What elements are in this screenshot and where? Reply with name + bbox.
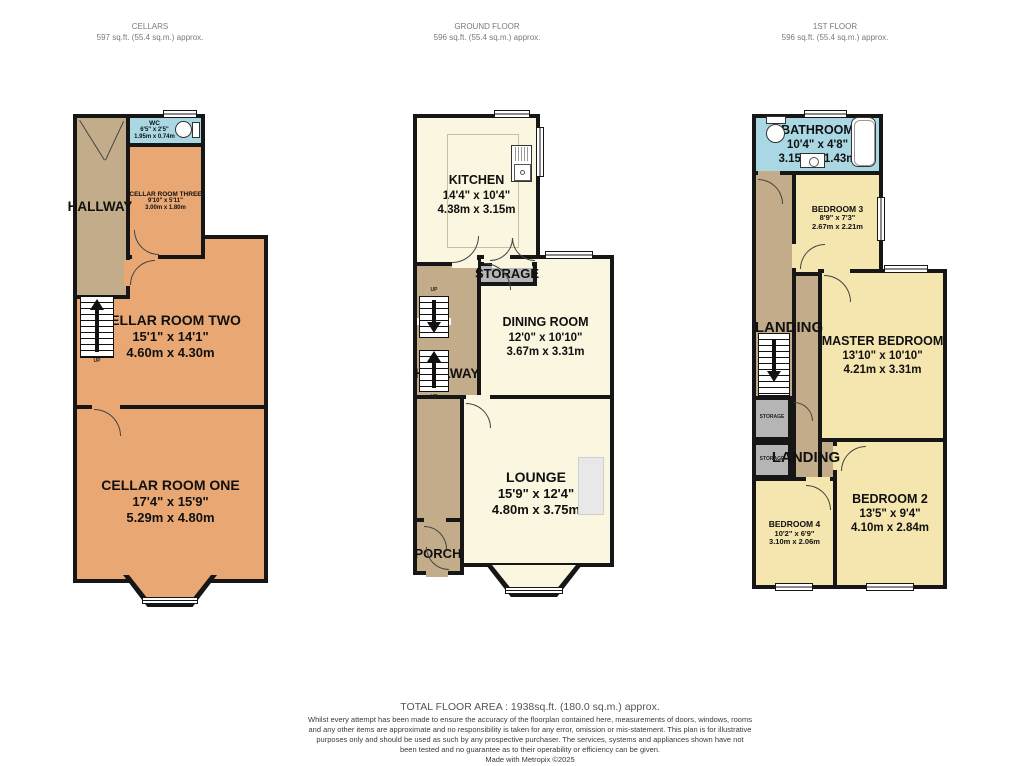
room-label: BEDROOM 4 10'2" x 6'9" 3.10m x 2.06m — [769, 519, 820, 547]
door-opening — [466, 395, 490, 403]
window — [142, 597, 198, 604]
down-arrow-icon — [427, 322, 441, 333]
floor-title: 1ST FLOOR — [735, 22, 935, 33]
door-opening — [424, 518, 446, 526]
total-floor-area: TOTAL FLOOR AREA : 1938sq.ft. (180.0 sq.… — [262, 701, 798, 713]
hallway-label: HALLWAY — [58, 199, 142, 214]
up-arrow-icon — [427, 351, 441, 362]
sink-icon — [800, 153, 825, 168]
window — [494, 110, 530, 118]
kitchen-sink-icon — [511, 145, 532, 182]
up-arrow-icon — [432, 362, 436, 388]
window — [775, 583, 813, 591]
kitchen-counter — [447, 134, 519, 248]
up-arrow-icon — [95, 310, 99, 352]
chimney-breast — [578, 457, 604, 515]
bathtub-icon — [851, 117, 876, 167]
floorplan-canvas: CELLARS 597 sq.ft. (55.4 sq.m.) approx. … — [0, 0, 1024, 766]
up-label: UP — [82, 358, 112, 364]
room-label: LOUNGE 15'9" x 12'4" 4.80m x 3.75m — [492, 445, 580, 518]
window — [536, 127, 544, 177]
toilet-icon — [766, 124, 785, 143]
zone-ground-hallway-lower — [413, 395, 464, 522]
room-label: BEDROOM 2 13'5" x 9'4" 4.10m x 2.84m — [851, 492, 929, 535]
window — [505, 587, 563, 594]
room-label: CELLAR ROOM ONE 17'4" x 15'9" 5.29m x 4.… — [101, 463, 239, 526]
floor-header-cellars: CELLARS 597 sq.ft. (55.4 sq.m.) approx. — [50, 22, 250, 44]
sink-drain — [520, 170, 525, 175]
toilet-icon — [766, 116, 786, 124]
window — [866, 583, 914, 591]
bathtub-inner — [854, 120, 875, 166]
door-opening — [92, 401, 120, 409]
door-opening — [758, 171, 780, 179]
floor-area: 596 sq.ft. (55.4 sq.m.) approx. — [387, 33, 587, 44]
door-opening — [824, 267, 850, 275]
disclaimer-text: Whilst every attempt has been made to en… — [308, 715, 752, 755]
floor-area: 597 sq.ft. (55.4 sq.m.) approx. — [50, 33, 250, 44]
up-label: UP — [420, 394, 448, 400]
down-arrow-icon — [767, 371, 781, 382]
down-arrow-icon — [432, 300, 436, 323]
up-arrow-icon — [90, 299, 104, 310]
floor-header-first: 1ST FLOOR 596 sq.ft. (55.4 sq.m.) approx… — [735, 22, 935, 44]
storage-small-label: STORAGE — [750, 414, 794, 420]
window — [163, 110, 197, 118]
door-opening — [426, 569, 448, 577]
sink-basin — [809, 157, 819, 167]
toilet-icon — [175, 121, 192, 138]
door-opening — [792, 244, 800, 268]
up-label: UP — [420, 287, 448, 293]
floor-header-ground: GROUND FLOOR 596 sq.ft. (55.4 sq.m.) app… — [387, 22, 587, 44]
door-opening — [806, 477, 830, 485]
toilet-icon — [192, 122, 200, 138]
down-arrow-icon — [772, 340, 776, 372]
draining-board — [513, 147, 530, 161]
room-label: DINING ROOM 12'0" x 10'10" 3.67m x 3.31m — [502, 295, 588, 358]
room-label: MASTER BEDROOM 13'10" x 10'10" 4.21m x 3… — [822, 334, 944, 377]
window — [804, 110, 847, 118]
window — [545, 251, 593, 259]
room-label: BEDROOM 3 8'9" x 7'3" 2.67m x 2.21m — [812, 204, 863, 244]
credit-text: Made with Metropix ©2025 — [308, 755, 752, 764]
window — [884, 265, 928, 273]
floor-title: GROUND FLOOR — [387, 22, 587, 33]
floor-area: 596 sq.ft. (55.4 sq.m.) approx. — [735, 33, 935, 44]
storage-small-label: STORAGE — [750, 456, 794, 462]
floor-title: CELLARS — [50, 22, 250, 33]
window — [877, 197, 885, 241]
